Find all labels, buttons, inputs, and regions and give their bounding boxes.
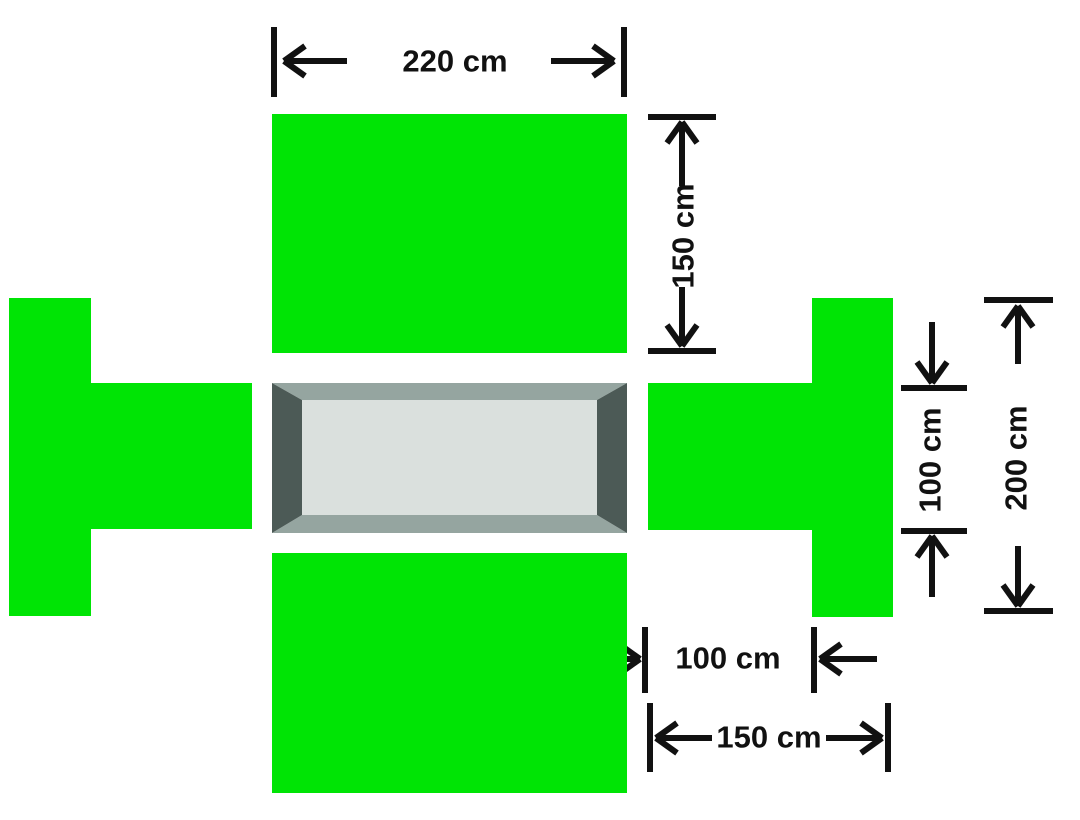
table-top-view (272, 383, 627, 533)
arrow-150top-up-icon (667, 122, 697, 186)
dim-label-top-rug-depth: 150 cm (668, 183, 699, 288)
table-bevel-left (272, 383, 302, 533)
dim-label-right-total-height: 200 cm (1001, 405, 1032, 510)
table-bevel-right (597, 383, 627, 533)
arrow-150bottom-right-icon (826, 723, 882, 753)
dim-label-bottom-total-width: 150 cm (716, 722, 821, 753)
arrow-100bottom-left-icon (820, 644, 877, 674)
arrow-200-up-icon (1003, 306, 1033, 364)
dim-label-bottom-opening-width: 100 cm (675, 643, 780, 674)
arrow-150bottom-left-icon (656, 723, 712, 753)
arrow-220-right-icon (551, 46, 614, 76)
rug-layout-diagram: 220 cm 150 cm 100 cm 200 cm 100 cm 150 c… (0, 0, 1080, 820)
dim-label-right-opening-height: 100 cm (915, 407, 946, 512)
table-bevel-bottom (272, 515, 627, 533)
arrow-100right-down-icon (917, 322, 947, 383)
arrow-220-left-icon (284, 46, 347, 76)
arrow-150top-down-icon (667, 287, 697, 346)
arrow-200-down-icon (1003, 546, 1033, 606)
arrow-100right-up-icon (917, 536, 947, 597)
table-surface (302, 400, 597, 515)
top-rug (272, 114, 627, 353)
bottom-rug (272, 553, 627, 793)
dim-label-top-width: 220 cm (402, 46, 507, 77)
table-bevel-top (272, 383, 627, 400)
left-rug (9, 298, 252, 616)
